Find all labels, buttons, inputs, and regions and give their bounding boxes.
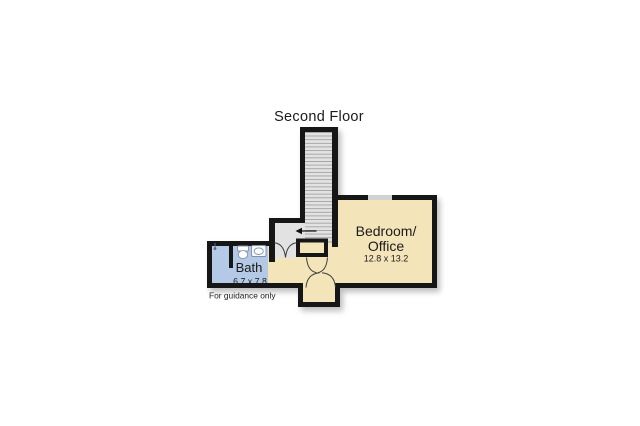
bath-label: Bath: [236, 260, 263, 275]
bath-partition-wall: [229, 246, 233, 268]
closet-floor: [300, 243, 324, 254]
wall: [270, 218, 305, 223]
window: [366, 195, 394, 200]
bump-out: [303, 283, 335, 303]
wall: [432, 195, 437, 288]
wall: [269, 218, 275, 262]
bath-dimensions: 6.7 x 7.8: [233, 277, 267, 287]
toilet-icon: [238, 246, 249, 259]
wall: [298, 302, 340, 307]
stair-steps: [305, 132, 332, 241]
wall: [300, 127, 337, 132]
wall: [207, 241, 212, 288]
wall: [300, 127, 305, 223]
window-glass: [368, 195, 392, 200]
wall: [332, 127, 338, 247]
floor-plan-body: Bedroom/ Office 12.8 x 13.2 Bath 6.7 x 7…: [207, 127, 437, 307]
floor-plan-canvas: Second Floor: [0, 0, 640, 426]
bedroom-office-label-line2: Office: [368, 238, 405, 254]
floor-plan: Second Floor: [0, 0, 640, 426]
bedroom-office-label-line1: Bedroom/: [356, 223, 417, 239]
bedroom-office-dimensions: 12.8 x 13.2: [364, 254, 409, 264]
page-title: Second Floor: [274, 109, 364, 125]
guidance-note: For guidance only: [209, 291, 276, 301]
under-stair-closet: [296, 239, 328, 258]
wall: [335, 283, 437, 288]
window-frame-tick: [366, 195, 368, 200]
window-frame-tick: [392, 195, 394, 200]
sink-icon: [252, 246, 267, 257]
